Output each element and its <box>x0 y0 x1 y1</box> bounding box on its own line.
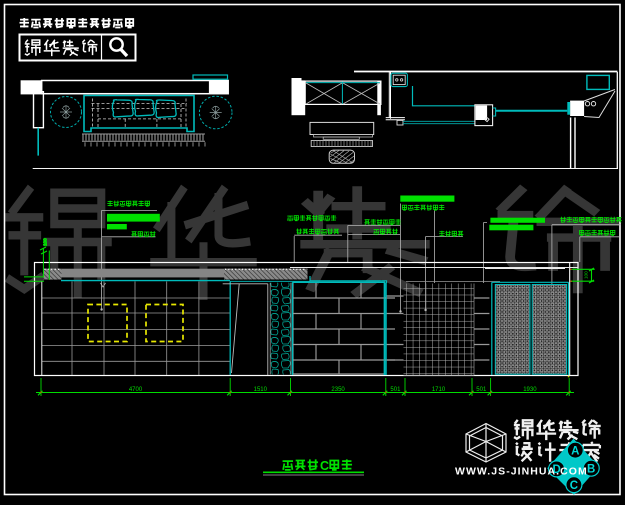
svg-text:4700: 4700 <box>129 387 143 393</box>
svg-text:501: 501 <box>476 387 487 393</box>
svg-text:501: 501 <box>390 387 401 393</box>
svg-text:C: C <box>570 480 578 492</box>
svg-text:1930: 1930 <box>523 387 537 393</box>
svg-text:A: A <box>571 445 579 457</box>
svg-text:B: B <box>587 463 595 475</box>
svg-text:1510: 1510 <box>254 387 268 393</box>
svg-text:100: 100 <box>584 271 589 279</box>
svg-text:C: C <box>320 459 329 473</box>
svg-text:2350: 2350 <box>331 387 345 393</box>
svg-text:100: 100 <box>43 238 48 246</box>
svg-text:1710: 1710 <box>432 387 446 393</box>
svg-text:WWW.JS-JINHUA.COM: WWW.JS-JINHUA.COM <box>455 466 588 478</box>
